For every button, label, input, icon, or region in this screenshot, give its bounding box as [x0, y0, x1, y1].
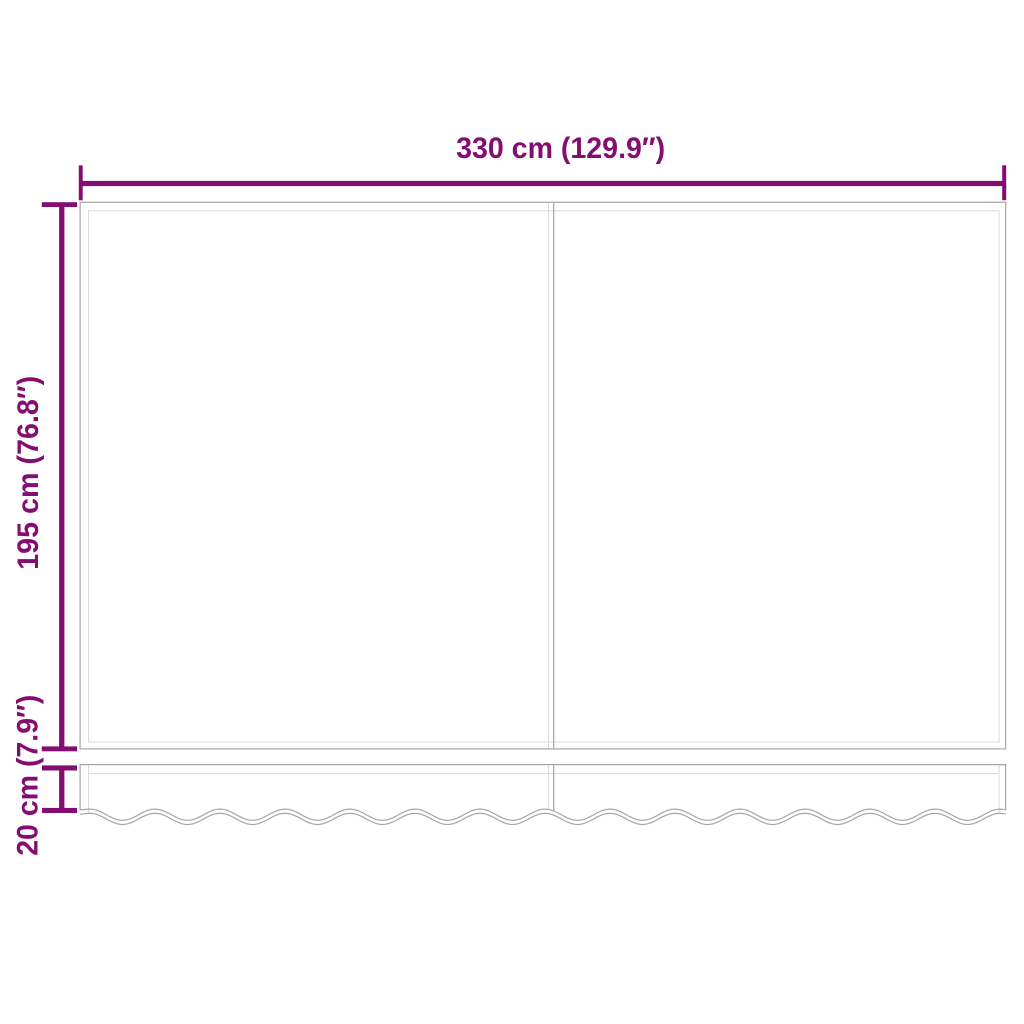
svg-text:20 cm (7.9″): 20 cm (7.9″)	[12, 695, 45, 856]
svg-text:195 cm (76.8″): 195 cm (76.8″)	[12, 376, 45, 570]
svg-text:330 cm (129.9″): 330 cm (129.9″)	[456, 132, 665, 165]
